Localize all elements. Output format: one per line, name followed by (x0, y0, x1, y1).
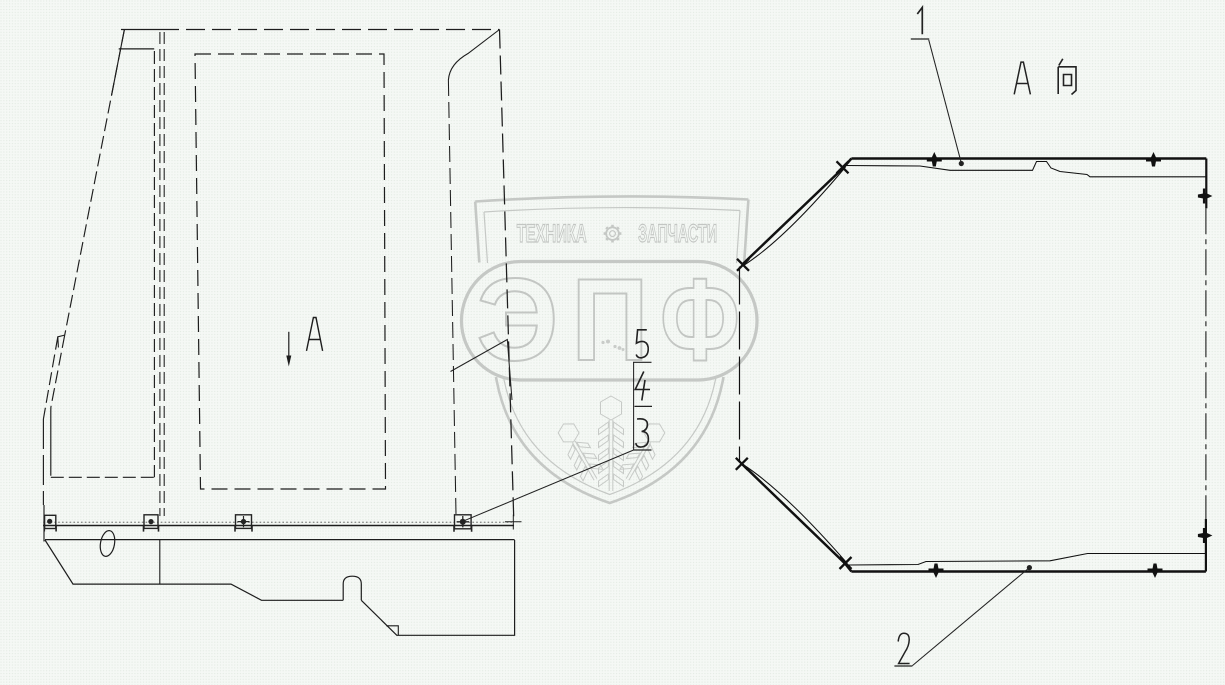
svg-text:Ф: Ф (660, 254, 740, 385)
svg-text:ТЕХНИКА: ТЕХНИКА (517, 220, 587, 248)
svg-text:Э: Э (477, 254, 559, 385)
svg-text:ЗАПЧАСТИ: ЗАПЧАСТИ (638, 220, 717, 248)
svg-text:П: П (572, 254, 649, 385)
